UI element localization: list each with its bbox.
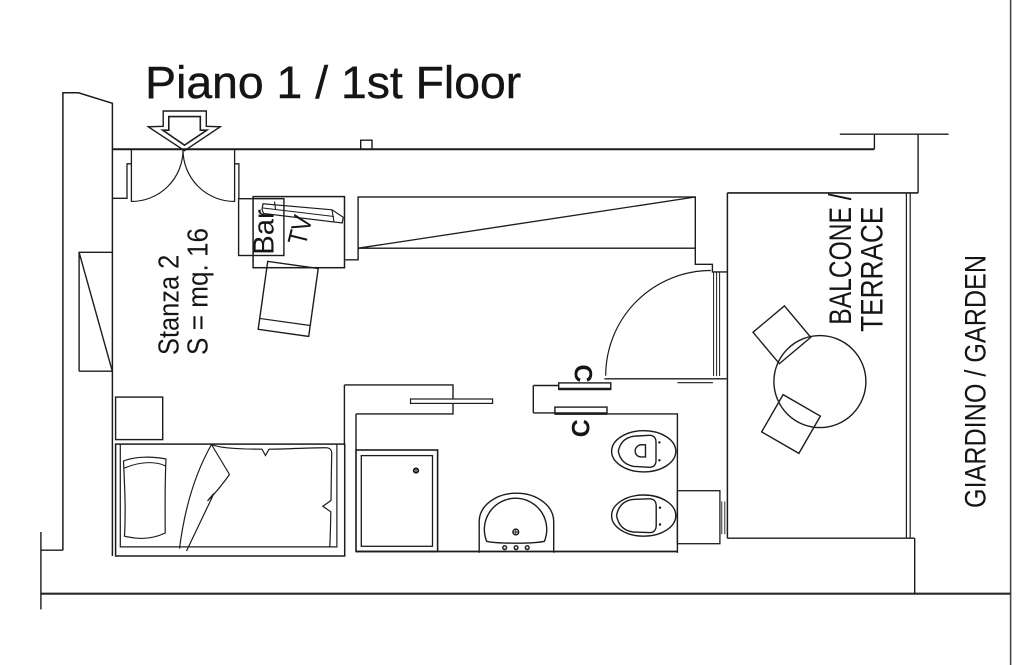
svg-text:TERRACE: TERRACE [853,207,889,332]
svg-text:C: C [569,365,597,383]
svg-text:GIARDINO / GARDEN: GIARDINO / GARDEN [960,255,993,508]
svg-text:S = mq. 16: S = mq. 16 [183,228,215,355]
svg-text:Piano 1 / 1st Floor: Piano 1 / 1st Floor [145,57,521,108]
svg-text:Stanza 2: Stanza 2 [154,255,186,355]
svg-text:Bar: Bar [249,209,281,255]
svg-text:C: C [567,419,595,437]
